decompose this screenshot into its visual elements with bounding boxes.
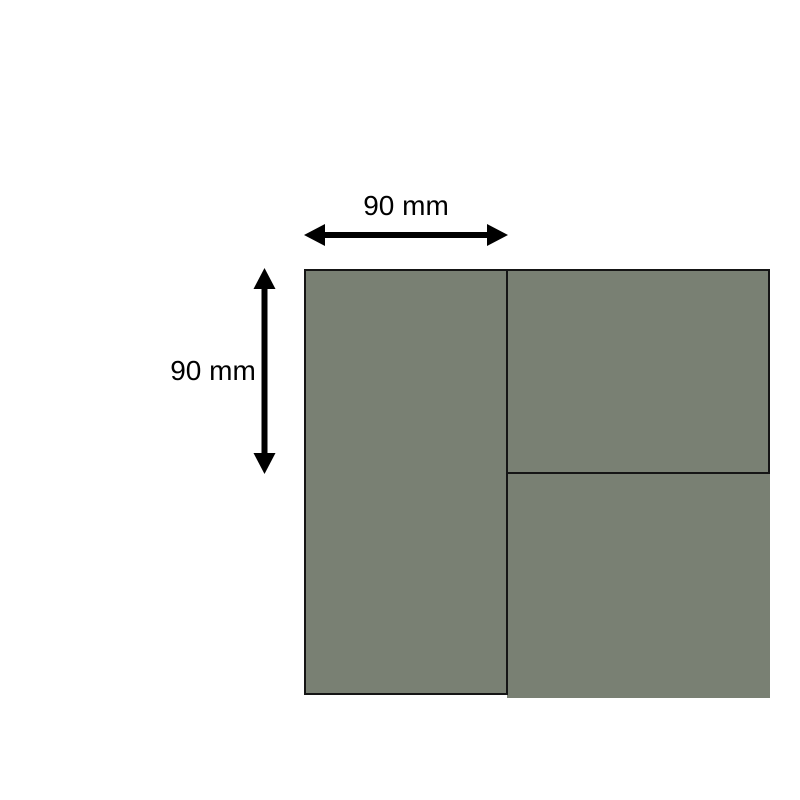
height-dimension-label: 90 mm [133,355,293,387]
width-dimension-label: 90 mm [326,190,486,222]
panel-left [304,269,508,695]
panel-bottom-right [507,472,770,698]
width-dimension-arrow [304,224,508,246]
panel-top-right [506,269,770,474]
height-arrow-head-top [254,268,276,289]
width-arrow-head-right [487,224,508,246]
diagram-canvas: 90 mm 90 mm [0,0,800,800]
height-arrow-head-bottom [254,453,276,474]
width-arrow-head-left [304,224,325,246]
